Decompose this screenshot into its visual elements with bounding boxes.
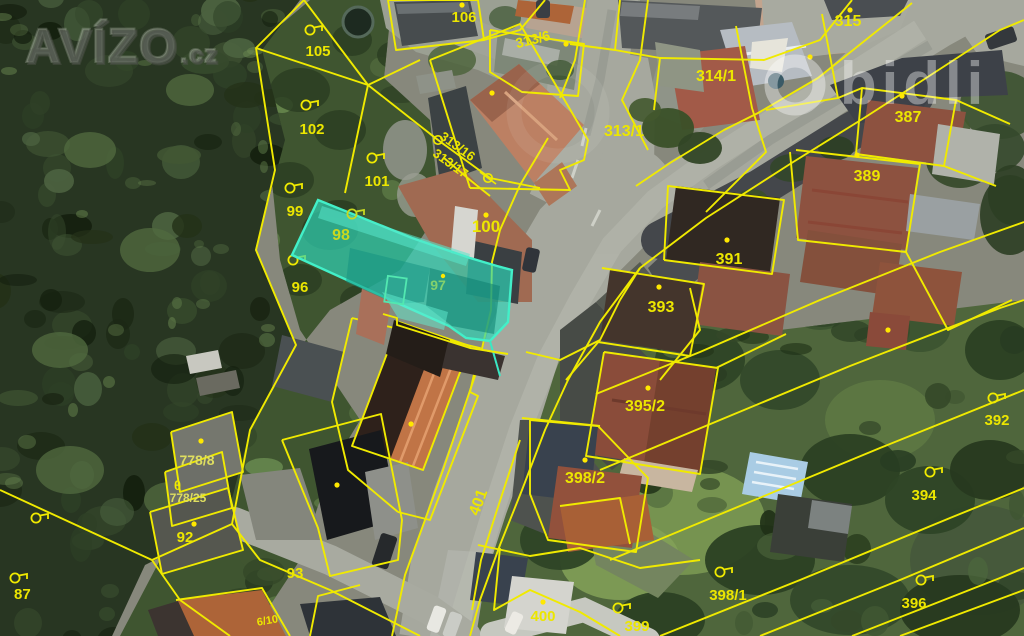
svg-text:87: 87	[14, 586, 31, 603]
svg-text:392: 392	[984, 412, 1009, 429]
svg-text:98: 98	[332, 227, 350, 244]
svg-text:398/1: 398/1	[709, 587, 747, 604]
svg-text:400: 400	[530, 608, 555, 625]
svg-text:394: 394	[911, 487, 937, 504]
svg-text:93: 93	[287, 565, 304, 582]
svg-text:92: 92	[177, 529, 194, 546]
svg-text:391: 391	[716, 251, 743, 268]
svg-text:314/1: 314/1	[696, 68, 736, 85]
svg-text:398/2: 398/2	[565, 470, 605, 487]
svg-text:96: 96	[292, 279, 309, 296]
svg-text:bidli: bidli	[840, 50, 988, 117]
svg-text:313/1: 313/1	[604, 123, 644, 140]
svg-text:399: 399	[624, 618, 649, 635]
svg-text:99: 99	[287, 203, 304, 220]
svg-text:100: 100	[472, 217, 500, 236]
svg-text:97: 97	[430, 277, 446, 293]
svg-text:778/25: 778/25	[170, 491, 207, 505]
svg-text:105: 105	[305, 43, 330, 60]
svg-text:393: 393	[648, 299, 675, 316]
svg-text:778/8: 778/8	[179, 452, 214, 468]
svg-text:102: 102	[299, 121, 324, 138]
svg-text:396: 396	[901, 595, 926, 612]
svg-text:315: 315	[835, 13, 862, 30]
svg-text:389: 389	[854, 168, 881, 185]
svg-text:101: 101	[364, 173, 389, 190]
svg-text:106: 106	[451, 9, 476, 26]
svg-text:395/2: 395/2	[625, 398, 665, 415]
